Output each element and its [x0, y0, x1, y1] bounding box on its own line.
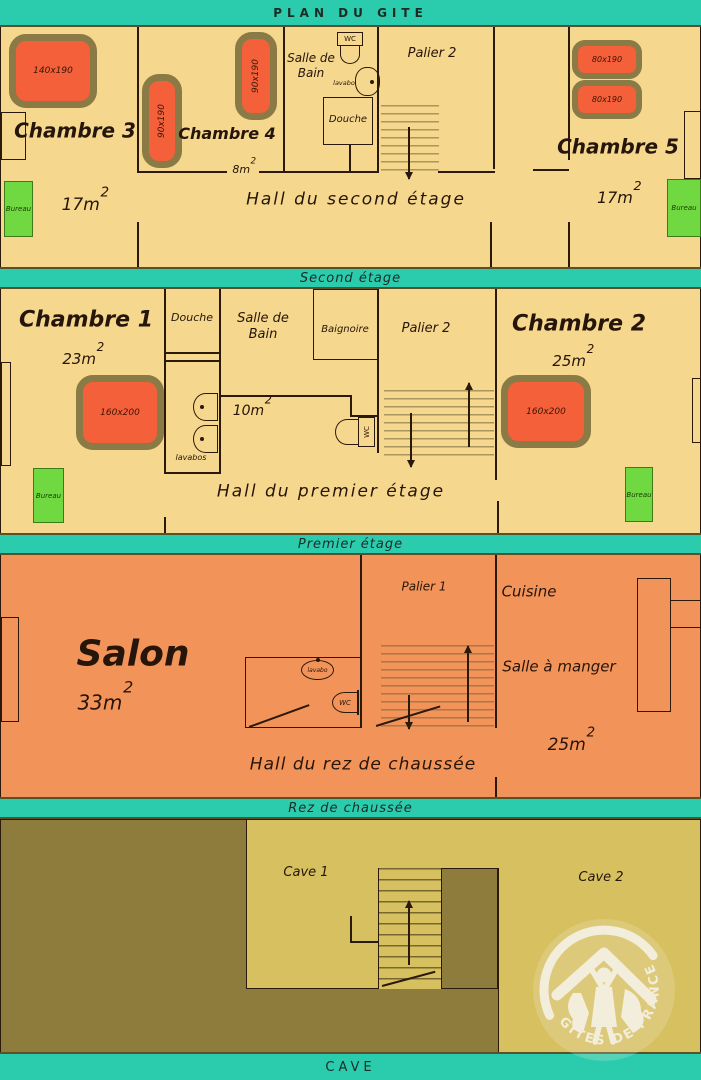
wall	[350, 395, 352, 416]
room-label-line: Bain	[287, 66, 335, 81]
area-label-salle-a-manger: 25m2	[548, 732, 595, 757]
wall	[349, 144, 351, 171]
area-label-salon: 33m2	[77, 687, 132, 716]
section-second-etage: 140x190 90x190 90x190 80x190 80x190 Bure…	[0, 27, 701, 267]
stair-arrow-up-icon	[467, 646, 469, 722]
area-sup: 2	[586, 724, 595, 740]
sink-drain-dot	[200, 437, 204, 441]
wall	[164, 472, 221, 474]
room-label-salle-a-manger: Salle à manger	[502, 658, 615, 677]
area-value: 17m	[62, 195, 100, 215]
window	[1, 617, 19, 722]
room-label-chambre2: Chambre 2	[512, 310, 646, 338]
area-sup: 2	[634, 179, 642, 194]
sink-tap-dot	[316, 658, 320, 662]
wc-cistern	[357, 690, 359, 715]
area-value: 17m	[597, 188, 633, 207]
area-value: 33m	[77, 690, 122, 714]
wall	[164, 517, 166, 533]
wall	[490, 222, 492, 267]
staircase-down	[381, 105, 439, 171]
room-label-palier1: Palier 1	[401, 580, 446, 595]
wall	[377, 27, 379, 171]
band-label: CAVE	[325, 1060, 375, 1075]
room-label-chambre4: Chambre 4	[178, 124, 276, 144]
fixture-label-baignoire: Baignoire	[321, 324, 369, 337]
room-label-cave1: Cave 1	[283, 865, 328, 881]
room-label-salon: Salon	[77, 632, 190, 677]
page-title: PLAN DU GITE	[273, 6, 428, 20]
wall	[568, 222, 570, 267]
wall	[497, 501, 499, 533]
area-sup: 2	[97, 341, 105, 355]
area-label-chambre5: 17m2	[597, 186, 641, 208]
room-label-line: Salle de	[237, 311, 289, 327]
wall	[164, 289, 166, 473]
sink-icon: lavabo	[301, 660, 334, 680]
hall-label-second: Hall du second étage	[246, 189, 466, 210]
fixture-label-douche: Douche	[329, 114, 367, 127]
area-value: 10m	[233, 403, 264, 419]
bed-80x190-a: 80x190	[572, 40, 642, 79]
wall	[137, 27, 139, 171]
wc-cistern: WC	[337, 32, 363, 46]
bureau-desk: Bureau	[625, 467, 653, 522]
room-label-cuisine: Cuisine	[502, 583, 557, 602]
room-label-cave2: Cave 2	[578, 870, 623, 886]
bureau-desk: Bureau	[667, 179, 701, 237]
sink-drain-dot	[370, 80, 374, 84]
sink-drain-dot	[200, 405, 204, 409]
shower-threshold	[164, 352, 221, 354]
window	[692, 378, 701, 443]
hall-label-rez: Hall du rez de chaussée	[250, 754, 476, 775]
window	[684, 111, 701, 179]
room-label-line: Salle de	[287, 51, 335, 66]
room-label-line: Bain	[237, 327, 289, 343]
section-premier-etage: 160x200 160x200 Bureau Bureau WC	[0, 289, 701, 533]
handrail	[350, 916, 352, 942]
wall	[495, 555, 497, 728]
bed-size-label: 90x190	[251, 59, 261, 93]
bed-140x190: 140x190	[9, 34, 97, 108]
wall	[493, 27, 495, 169]
room-label-palier2: Palier 2	[408, 46, 457, 62]
wall	[137, 171, 227, 173]
room-label-salle-de-bain: Salle de Bain	[237, 311, 289, 344]
band-rez-de-chaussee: Rez de chaussée	[0, 797, 701, 819]
shower-threshold	[164, 360, 221, 362]
wall	[219, 395, 351, 397]
area-value: 23m	[62, 350, 96, 368]
bed-size-label: 80x190	[592, 95, 622, 104]
bed-size-label: 160x200	[526, 407, 566, 417]
bed-size-label: 90x190	[157, 104, 167, 138]
title-band: PLAN DU GITE	[0, 0, 701, 27]
fixture-label-lavabo: lavabo	[333, 79, 355, 87]
sink-icon	[193, 393, 218, 421]
section-cave: Cave 1 Cave 2 GÎTES DE FRANCE	[0, 819, 701, 1052]
kitchen-counter	[670, 600, 701, 628]
room-label-chambre5: Chambre 5	[557, 135, 679, 160]
bed-size-label: 80x190	[592, 55, 622, 64]
area-label-chambre3: 17m2	[62, 192, 109, 217]
stair-arrow-up-icon	[468, 383, 470, 447]
wall	[219, 289, 221, 473]
area-value: 8m	[232, 163, 250, 176]
cave-wall-block	[441, 868, 498, 989]
gites-de-france-logo: GÎTES DE FRANCE	[529, 915, 679, 1065]
wc-label: WC	[363, 426, 371, 438]
wall	[137, 222, 139, 267]
room-label-salle-de-bain: Salle de Bain	[287, 51, 335, 81]
wc-cistern: WC	[358, 417, 375, 447]
wall	[533, 169, 569, 171]
band-premier-etage: Premier étage	[0, 533, 701, 555]
area-sup: 2	[587, 343, 595, 357]
stair-arrow-up-icon	[408, 901, 410, 965]
area-value: 25m	[548, 735, 586, 755]
toilet-bowl-icon: WC	[332, 692, 358, 713]
room-label-palier2: Palier 2	[402, 321, 451, 337]
staircase-double	[384, 390, 494, 460]
area-label-chambre4: 8m2	[232, 161, 255, 176]
band-second-etage: Second étage	[0, 267, 701, 289]
kitchen-counter	[637, 578, 671, 712]
area-sup: 2	[265, 393, 272, 406]
stair-arrow-down-icon	[410, 413, 412, 467]
wall	[283, 27, 285, 171]
bed-160x200-ch1: 160x200	[76, 375, 164, 450]
bed-90x190-b: 90x190	[235, 32, 277, 120]
bed-80x190-b: 80x190	[572, 80, 642, 119]
toilet-bowl-icon	[340, 45, 360, 64]
band-label: Rez de chaussée	[288, 801, 413, 816]
bureau-desk: Bureau	[33, 468, 64, 523]
wall	[495, 289, 497, 480]
floor-plan: PLAN DU GITE 140x190 90x190 90x190 80x19…	[0, 0, 701, 1080]
area-label-chambre1: 23m2	[62, 347, 103, 369]
bed-size-label: 160x200	[100, 408, 140, 418]
cave-room-area	[246, 820, 700, 868]
bed-160x200-ch2: 160x200	[501, 375, 591, 448]
toilet-bowl-icon	[335, 419, 359, 445]
band-label: Premier étage	[298, 537, 403, 552]
hall-label-premier: Hall du premier étage	[217, 481, 445, 502]
section-rez-de-chaussee: lavabo WC Salon 33m2 Palier 1 Cuisine Sa…	[0, 555, 701, 797]
staircase-double	[381, 645, 494, 728]
bureau-desk: Bureau	[4, 181, 33, 237]
room-label-douche: Douche	[171, 311, 213, 325]
band-label: Second étage	[300, 271, 401, 286]
area-value: 25m	[552, 352, 586, 370]
handrail	[350, 941, 378, 943]
area-sup: 2	[250, 156, 256, 166]
window	[1, 362, 11, 466]
fixture-label-lavabos: lavabos	[176, 453, 207, 463]
stair-arrow-down-icon	[408, 695, 410, 729]
wall	[438, 171, 495, 173]
stair-arrow-down-icon	[408, 127, 410, 179]
wall	[495, 777, 497, 797]
bed-90x190-a: 90x190	[142, 74, 182, 168]
bed-size-label: 140x190	[33, 66, 73, 76]
sink-icon	[193, 425, 218, 453]
wall	[259, 171, 379, 173]
room-label-chambre1: Chambre 1	[19, 306, 153, 334]
area-label-salle-de-bain: 10m2	[233, 399, 272, 420]
sink-icon	[355, 67, 380, 96]
room-label-chambre3: Chambre 3	[14, 119, 136, 144]
area-sup: 2	[123, 678, 133, 697]
area-sup: 2	[100, 184, 109, 200]
area-label-chambre2: 25m2	[552, 349, 593, 371]
